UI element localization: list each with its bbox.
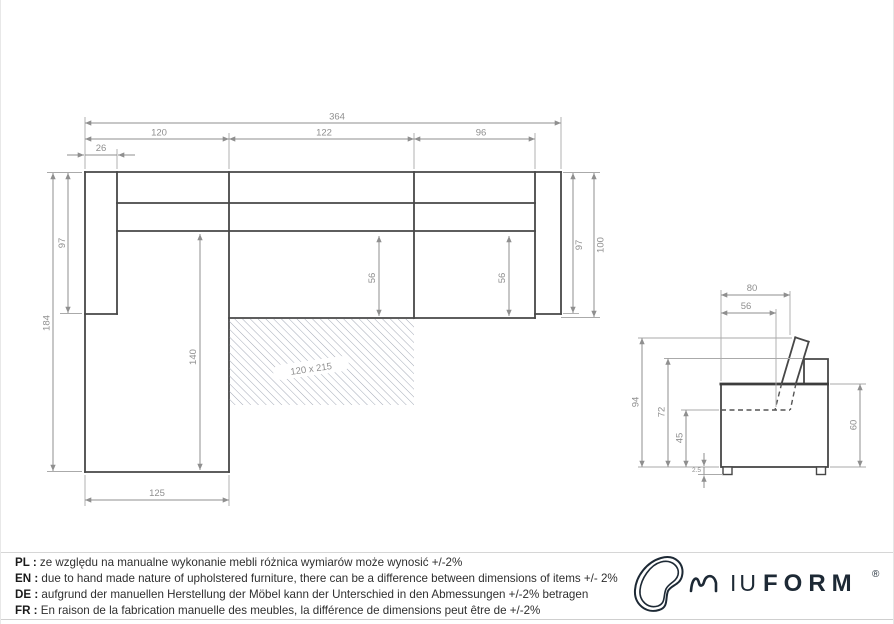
dimension-drawing: 120 x 215 364 120 122 [1, 0, 894, 552]
spec-sheet-page: 120 x 215 364 120 122 [0, 0, 894, 624]
top-view-extension-lines [47, 117, 600, 506]
bottom-border-line [1, 619, 894, 620]
logo-m-glyph [691, 576, 716, 591]
dim-height-seat: 45 [675, 433, 686, 444]
note-row-fr: FR : En raison de la fabrication manuell… [15, 603, 618, 619]
dim-chaise-width: 125 [149, 488, 165, 499]
note-text: aufgrund der manuellen Herstellung der M… [41, 588, 588, 601]
dim-height-arm: 60 [849, 420, 860, 431]
side-view-extension-lines [638, 290, 866, 475]
logo-text-light: IU [730, 570, 759, 596]
dim-right-arm-depth: 97 [574, 240, 585, 251]
logo-text-bold: FORM [763, 570, 858, 597]
dim-right-total-depth: 100 [596, 237, 607, 253]
dim-depth-total: 80 [747, 283, 758, 294]
note-lang-label: FR : [15, 604, 38, 617]
dim-armrest-width: 26 [96, 143, 107, 154]
bed-area-hatch: 120 x 215 [230, 319, 415, 405]
sofa-leg [817, 467, 826, 475]
dim-height-back: 72 [657, 407, 668, 418]
backrest [804, 359, 828, 384]
tolerance-notes: PL : ze względu na manualne wykonanie me… [15, 555, 618, 619]
sofa-body [721, 384, 828, 467]
top-view-dimensions: 364 120 122 96 26 97 184 140 56 56 97 [42, 112, 607, 501]
dim-section-mid: 122 [316, 128, 332, 139]
note-lang-label: DE : [15, 588, 38, 601]
dim-section-right: 96 [476, 128, 487, 139]
dim-mid-seat-depth: 56 [367, 273, 378, 284]
note-lang-label: PL : [15, 556, 37, 569]
note-row-de: DE : aufgrund der manuellen Herstellung … [15, 587, 618, 603]
side-view-sofa-outline [720, 337, 830, 474]
dim-height-leg: 2.5 [692, 467, 701, 474]
dim-chaise-inner: 140 [188, 349, 199, 365]
dim-height-total: 94 [631, 397, 642, 408]
registered-mark: ® [872, 569, 880, 580]
side-view-dimensions: 80 56 94 72 45 2.5 60 [631, 283, 861, 488]
note-row-en: EN : due to hand made nature of upholste… [15, 571, 618, 587]
note-text: ze względu na manualne wykonanie mebli r… [40, 556, 462, 569]
dim-total-width: 364 [329, 112, 345, 123]
note-lang-label: EN : [15, 572, 38, 585]
dim-left-arm-depth: 97 [57, 238, 68, 249]
note-text: En raison de la fabrication manuelle des… [41, 604, 541, 617]
miuform-logo: IU FORM ® [626, 552, 888, 618]
sofa-leg [723, 467, 732, 475]
note-row-pl: PL : ze względu na manualne wykonanie me… [15, 555, 618, 571]
dim-seat-depth: 56 [741, 301, 752, 312]
dim-right-seat-depth: 56 [497, 273, 508, 284]
dim-total-depth: 184 [42, 315, 53, 331]
dim-section-left: 120 [151, 128, 167, 139]
note-text: due to hand made nature of upholstered f… [41, 572, 617, 585]
bean-icon [635, 557, 683, 611]
